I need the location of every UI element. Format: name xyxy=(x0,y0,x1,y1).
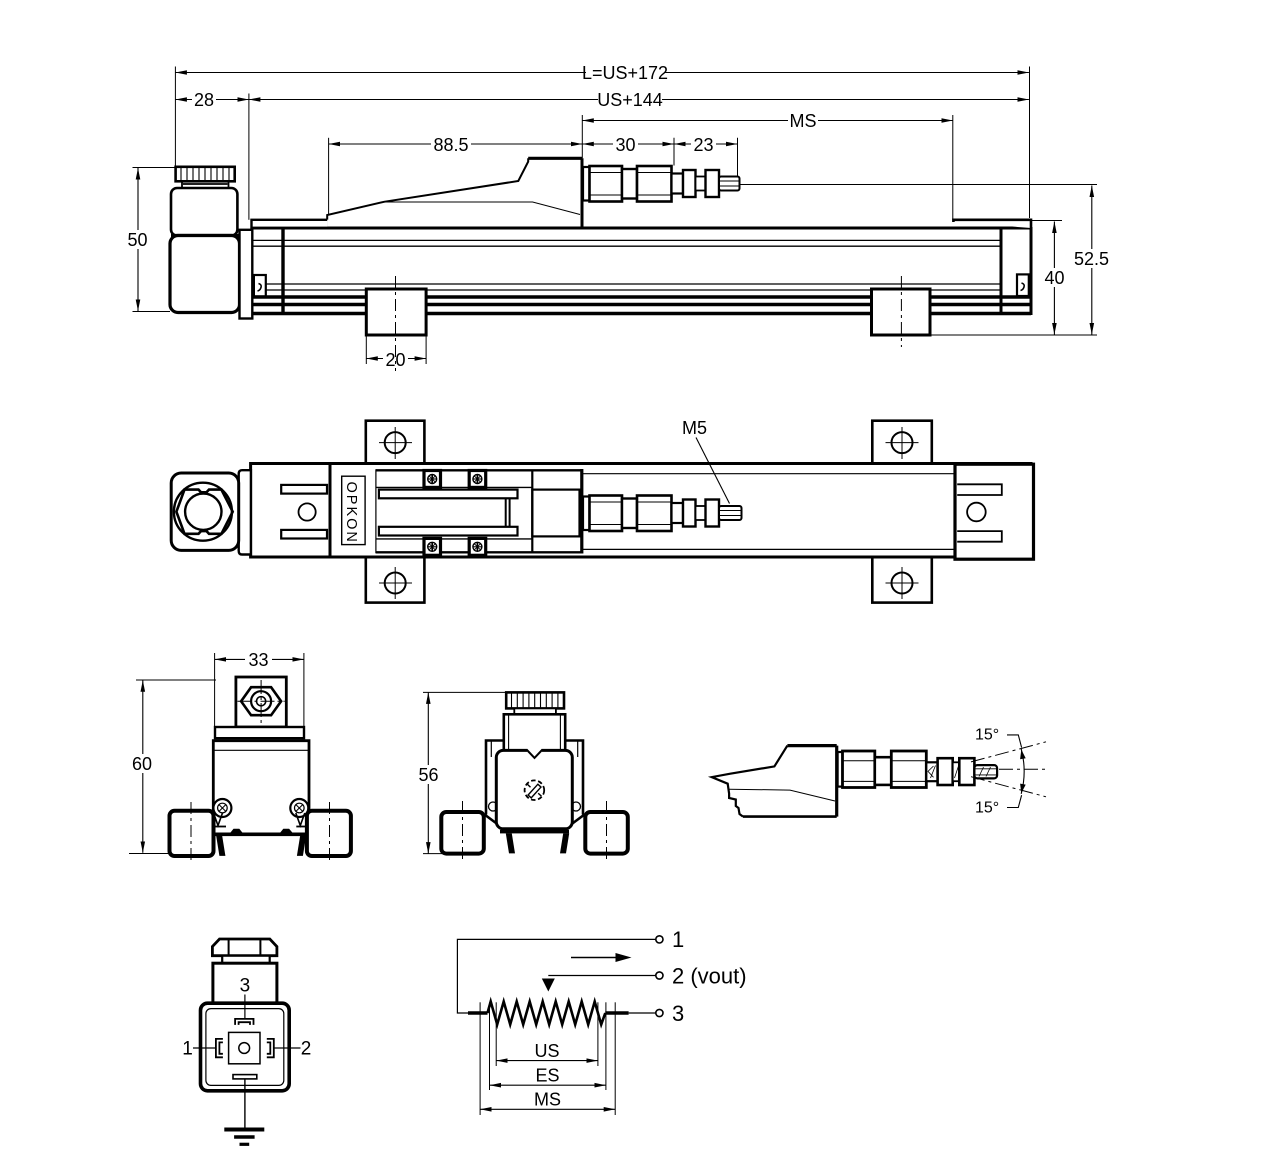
svg-text:15°: 15° xyxy=(975,800,999,817)
svg-text:52.5: 52.5 xyxy=(1074,249,1109,269)
svg-text:3: 3 xyxy=(240,976,251,997)
svg-text:MS: MS xyxy=(534,1090,561,1110)
svg-text:L=US+172: L=US+172 xyxy=(582,63,668,83)
svg-text:30: 30 xyxy=(615,135,635,155)
svg-text:US+144: US+144 xyxy=(597,90,663,110)
svg-text:56: 56 xyxy=(418,765,438,785)
svg-text:2 (vout): 2 (vout) xyxy=(672,964,747,989)
svg-text:40: 40 xyxy=(1044,268,1064,288)
svg-text:3: 3 xyxy=(672,1001,684,1026)
svg-text:60: 60 xyxy=(132,754,152,774)
svg-text:23: 23 xyxy=(693,135,713,155)
svg-text:28: 28 xyxy=(194,90,214,110)
svg-text:US: US xyxy=(534,1041,559,1061)
svg-text:1: 1 xyxy=(672,927,684,952)
svg-text:15°: 15° xyxy=(975,727,999,744)
svg-text:88.5: 88.5 xyxy=(433,135,468,155)
svg-text:50: 50 xyxy=(127,230,147,250)
svg-text:OPKON: OPKON xyxy=(343,482,359,544)
svg-text:33: 33 xyxy=(248,650,268,670)
svg-text:2: 2 xyxy=(301,1039,312,1060)
svg-text:MS: MS xyxy=(790,111,817,131)
svg-text:M5: M5 xyxy=(682,418,707,438)
svg-text:1: 1 xyxy=(182,1039,193,1060)
svg-text:ES: ES xyxy=(535,1066,559,1086)
